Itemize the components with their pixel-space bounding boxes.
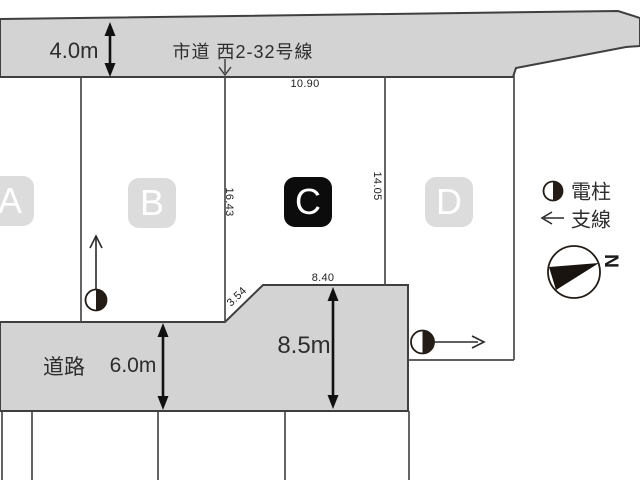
lot-a-badge: A <box>0 176 34 226</box>
utility-pole-icon <box>86 236 107 311</box>
lot-d-badge: D <box>425 177 473 227</box>
land-plot-site-plan: 4.0m 市道 西2-32号線 道路 6.0m 8.5m 10.90 16.43… <box>0 0 640 480</box>
bottom-road-width-label: 6.0m <box>110 354 157 378</box>
site-plan-drawing <box>0 0 640 480</box>
legend-left-arrow-icon <box>542 212 564 224</box>
lower-parcel-lines <box>2 411 409 480</box>
lot-c-label: C <box>295 181 321 223</box>
lot-b-label: B <box>140 182 164 224</box>
lot-c-badge-highlighted: C <box>284 177 332 227</box>
dimension-label: 14.05 <box>371 171 383 200</box>
legend-pole-icon <box>544 182 563 201</box>
legend-wire-label: 支線 <box>571 204 611 233</box>
lot-b-badge: B <box>128 178 176 228</box>
dimension-label: 16.43 <box>223 187 235 216</box>
dimension-label: 8.40 <box>312 272 335 284</box>
utility-pole-icon <box>411 331 484 354</box>
north-letter: N <box>599 254 621 268</box>
bottom-road-shape <box>0 285 408 411</box>
top-road-width-label: 4.0m <box>50 38 99 64</box>
lot-a-label: A <box>0 180 22 222</box>
top-road-name-label: 市道 西2-32号線 <box>172 38 313 64</box>
lot-d-label: D <box>436 181 462 223</box>
bottom-road-name-label: 道路 <box>43 351 85 381</box>
legend-pole-label: 電柱 <box>571 176 611 205</box>
north-arrow-icon <box>548 246 600 298</box>
road-extension-width-label: 8.5m <box>277 332 330 360</box>
dimension-label: 10.90 <box>290 78 319 90</box>
